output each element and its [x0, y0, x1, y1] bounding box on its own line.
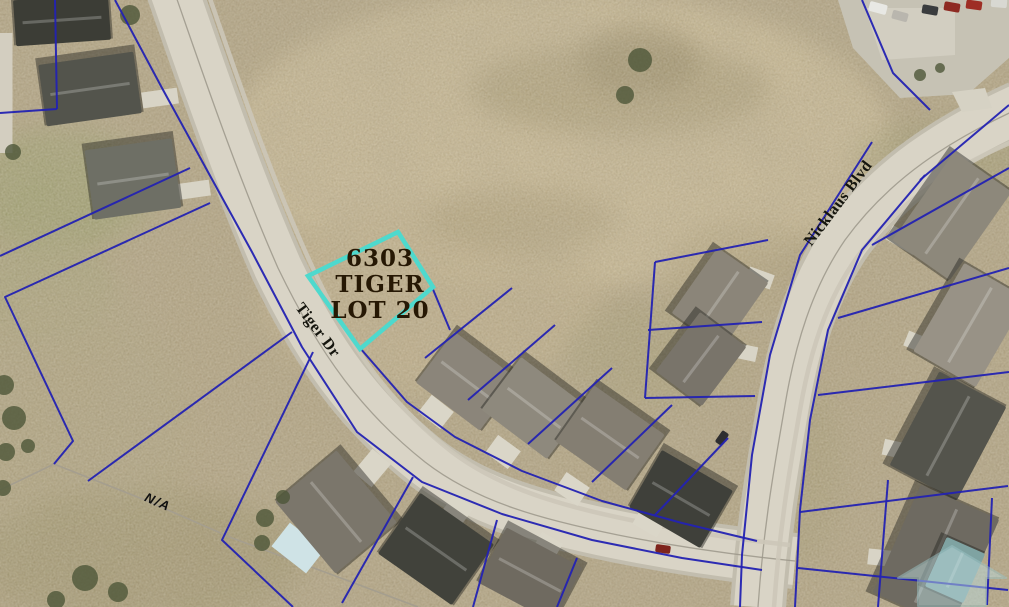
tree — [5, 144, 21, 160]
house — [82, 131, 184, 220]
lot-label-lot-number: LOT 20 — [330, 297, 429, 324]
lot-label-street: TIGER — [335, 271, 424, 298]
tree — [21, 439, 35, 453]
house — [11, 0, 113, 46]
tree — [256, 509, 274, 527]
driveway-pad — [0, 33, 13, 153]
tree — [628, 48, 652, 72]
tree — [276, 490, 290, 504]
tree — [2, 406, 26, 430]
tree — [935, 63, 945, 73]
tree — [254, 535, 270, 551]
tree — [108, 582, 128, 602]
lot-label-address: 6303 — [346, 245, 414, 272]
map-image: 6303 TIGER LOT 20 Tiger Dr Nicklaus Blvd… — [0, 0, 1009, 607]
tree — [914, 69, 926, 81]
tree — [72, 565, 98, 591]
aerial-parcel-map: 6303 TIGER LOT 20 Tiger Dr Nicklaus Blvd… — [0, 0, 1009, 607]
house — [35, 44, 144, 126]
car — [991, 0, 1008, 8]
tree — [616, 86, 634, 104]
